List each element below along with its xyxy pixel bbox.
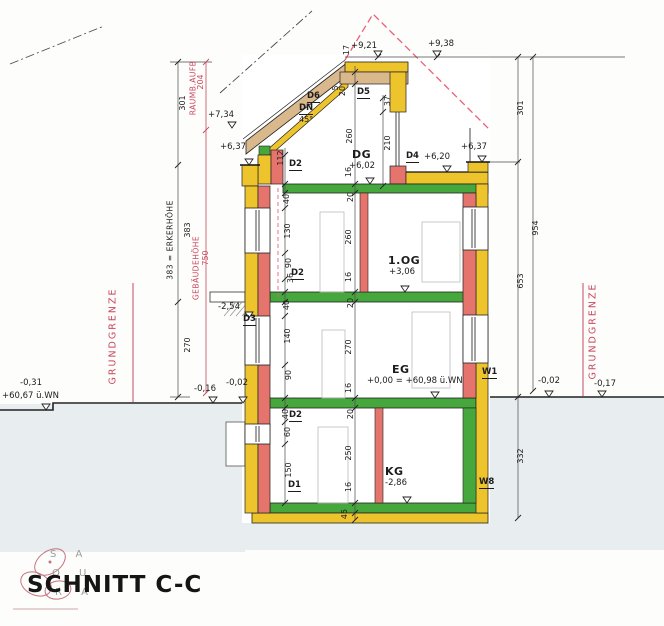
level-label: +6,20 [424, 153, 450, 162]
dim: 90 [285, 258, 293, 268]
dim: 270 [345, 339, 353, 354]
window-tag-w1: W1 [482, 368, 497, 379]
dim: 20 [339, 86, 347, 96]
level-label: +9,21 [351, 42, 377, 51]
door-tag-d2-dg: D2 [289, 160, 302, 171]
level-label: -0,02 [226, 379, 248, 388]
room-label-og: 1.OG [388, 255, 420, 266]
dim: 60 [284, 427, 292, 437]
dim: 301 [517, 100, 525, 115]
left-wall [245, 186, 270, 513]
dim: 210 [384, 135, 392, 150]
dim: 383 = ERKERHÖHE [166, 200, 174, 280]
level-label: -0,31 [20, 379, 42, 388]
dim: 112 [277, 150, 285, 165]
light-well [226, 422, 245, 466]
dim: 270 [184, 337, 192, 352]
dim: 130 [284, 223, 292, 238]
level-label: -0,02 [538, 377, 560, 386]
dim: 16 [345, 272, 353, 282]
property-boundary-label-right: GRUNDGRENZE [588, 283, 598, 380]
left-window-og [245, 208, 270, 253]
door-tag-d2-kg: D2 [289, 411, 302, 422]
level-label: +6,37 [220, 143, 246, 152]
dim: 150 [285, 462, 293, 477]
dim: 16 [345, 383, 353, 393]
level-label: +3,06 [389, 268, 415, 277]
room-label-kg: KG [385, 466, 404, 477]
dim: 17 [343, 45, 351, 55]
level-label: -2,86 [385, 479, 407, 488]
property-boundary-label-left: GRUNDGRENZE [108, 288, 118, 385]
level-label: -0,17 [594, 380, 616, 389]
right-window-og [463, 207, 488, 250]
dim-red-label: GEBÄUDEHÖHE [192, 236, 200, 300]
level-label: +60,67 ü.WN [2, 392, 59, 401]
level-label: +0,00 = +60,98 ü.WN [367, 377, 463, 386]
drawing-title: SCHNITT C-C [27, 572, 202, 598]
dim: 37 [384, 96, 392, 106]
door-tag-d1: D1 [288, 481, 301, 492]
door-tag-d4: D4 [406, 152, 419, 163]
door-tag-d6: D6 [307, 92, 320, 103]
dim: 20 [347, 298, 355, 308]
door-tag-d5: D5 [357, 88, 370, 99]
level-label: +9,38 [428, 40, 454, 49]
dim: 40 [283, 194, 291, 204]
door-tag-d3: D3 [243, 315, 256, 326]
dim: 16 [345, 482, 353, 492]
window-tag-w8: W8 [479, 478, 494, 489]
level-label: -2,54 [218, 303, 240, 312]
level-label: +7,34 [208, 111, 234, 120]
dim: 16 [345, 167, 353, 177]
roof-pitch-label: DN [299, 104, 313, 115]
left-window-kg [245, 424, 270, 444]
dim: 653 [517, 273, 525, 288]
dim-red: 750 [202, 250, 210, 265]
building-section-graphic [0, 0, 664, 626]
dim: 20 [347, 409, 355, 419]
dim: 20 [347, 192, 355, 202]
roof-pitch-angle: 45° [299, 116, 313, 124]
section-drawing-sheet: +9,21 +9,38 +7,34 +6,37 +6,37 D4 +6,20 D… [0, 0, 664, 626]
dim: 954 [532, 220, 540, 235]
room-label-dg: DG [352, 149, 371, 160]
dim-red-label: RAUMB.AUFB [189, 61, 197, 116]
cantilever-slab [210, 292, 245, 302]
dim-red: 204 [197, 74, 205, 89]
dim: 301 [179, 95, 187, 110]
room-label-eg: EG [392, 364, 410, 375]
logo-text-line: S A [50, 549, 90, 560]
dim: 45 [341, 509, 349, 519]
dim: 40 [282, 409, 290, 419]
dim: 250 [345, 445, 353, 460]
right-window-eg [463, 315, 488, 363]
dim: 260 [345, 229, 353, 244]
dim: 90 [285, 370, 293, 380]
level-label: +6,37 [461, 143, 487, 152]
dim: 40 [283, 300, 291, 310]
level-label: -0,16 [194, 385, 216, 394]
dim: 260 [346, 128, 354, 143]
dim: 36 [287, 273, 295, 283]
right-wall [463, 184, 488, 513]
dim: 332 [517, 448, 525, 463]
dim: 140 [284, 328, 292, 343]
